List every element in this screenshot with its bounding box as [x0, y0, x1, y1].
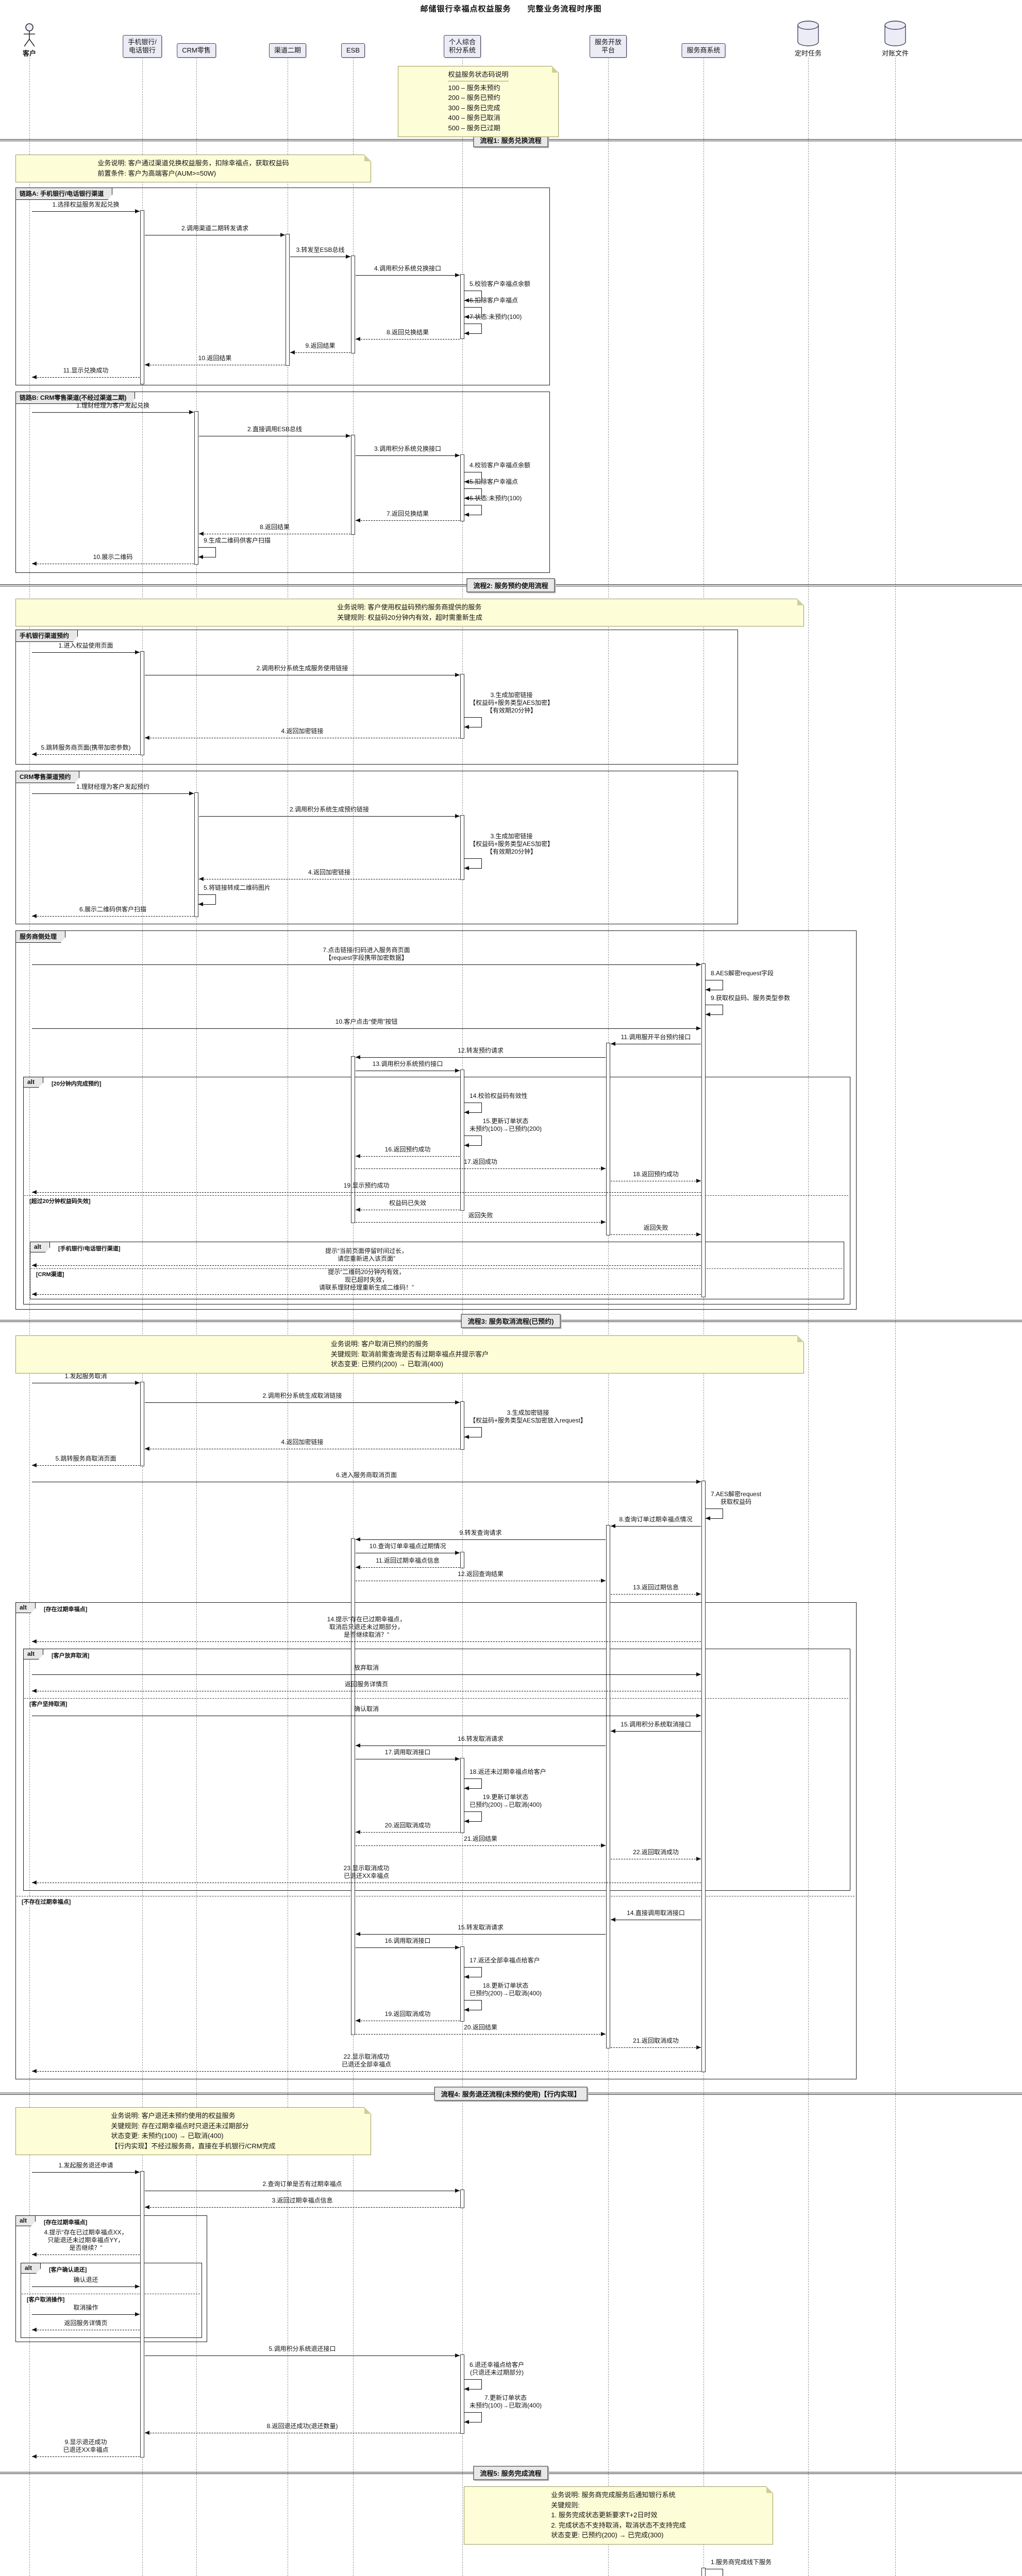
- message-line: [32, 1716, 701, 1716]
- message-line: [356, 1759, 460, 1759]
- separator-guard: [客户坚持取消]: [27, 1700, 69, 1708]
- message-label: 2.查询订单是否有过期幸福点: [262, 2180, 342, 2188]
- activation-bar: [701, 1481, 706, 2072]
- section-divider-label: 流程3: 服务取消流程(已预约): [461, 1314, 561, 1328]
- message-line: [145, 2433, 460, 2433]
- message-label: 12.返回查询结果: [458, 1570, 504, 1578]
- message-label-line: 是否继续？”: [44, 2244, 127, 2252]
- message-line: [32, 1674, 701, 1675]
- message-label: 4.返回加密链接: [308, 869, 350, 876]
- arrowhead-icon: [135, 2170, 140, 2174]
- arrowhead-icon: [455, 814, 460, 818]
- message-label: 22.返回取消成功: [633, 1849, 679, 1856]
- arrowhead-icon: [356, 1830, 360, 1834]
- message-label-line: 6.状态:未预约(100): [470, 495, 522, 502]
- arrowhead-icon: [290, 350, 295, 354]
- message-label-line: 提示“二维码20分钟内有效，: [319, 1268, 414, 1276]
- activation-bar: [701, 963, 706, 1297]
- message-line: [32, 1265, 701, 1266]
- message-label-line: 9.转发查询请求: [459, 1529, 501, 1537]
- message-label-line: 22.返回取消成功: [633, 1849, 679, 1856]
- message-label-line: 7.状态:未预约(100): [470, 313, 522, 321]
- message-line: [356, 1222, 606, 1223]
- arrowhead-icon: [696, 1714, 701, 1718]
- message-label-line: 4.返回加密链接: [281, 727, 323, 735]
- arrowhead-icon: [455, 1069, 460, 1073]
- participant-box: 手机银行/电话银行: [123, 35, 162, 58]
- note-body: 业务说明: 客户退还未预约使用的权益服务关键规则: 存在过期幸福点时只退还未过期…: [111, 2111, 275, 2151]
- message-label-line: 2.调用渠道二期转发请求: [181, 225, 248, 232]
- message-label-line: 19.返回取消成功: [385, 2010, 431, 2018]
- note-body: 业务说明: 客户使用权益码预约服务商提供的服务关键规则: 权益码20分钟内有效，…: [337, 602, 482, 622]
- message-label-line: 2.调用积分系统生成取消链接: [262, 1392, 342, 1400]
- message-line: [32, 1641, 701, 1642]
- message-label-line: 19.显示预约成功: [344, 1182, 390, 1190]
- message-label-line: 21.返回取消成功: [633, 2037, 679, 2045]
- activation-bar: [606, 1043, 610, 1235]
- participant-timer: 定时任务: [795, 20, 822, 58]
- message-label: 11.显示兑换成功: [63, 367, 109, 375]
- message-label: 1.发起服务取消: [64, 1372, 107, 1380]
- participant-label: ESB: [346, 46, 360, 55]
- message-line: [356, 1553, 460, 1553]
- message-label-line: 7.更新订单状态: [470, 2394, 542, 2402]
- message-label: 4.返回加密链接: [281, 727, 323, 735]
- participant-box: 服务开放平台: [590, 35, 627, 58]
- message-label: 5.校验客户幸福点余额: [470, 280, 530, 288]
- message-line: [356, 1057, 606, 1058]
- message-label-line: 20.返回结果: [464, 2024, 497, 2031]
- message-line: [32, 211, 140, 212]
- message-line: [145, 365, 285, 365]
- frame-guard: [客户放弃取消]: [52, 1651, 89, 1659]
- message-label-line: 18.更新订单状态: [470, 1982, 542, 1990]
- arrowhead-icon: [611, 1042, 615, 1046]
- frame-guard: [手机银行/电话银行渠道]: [58, 1244, 120, 1252]
- message-line: [32, 2172, 140, 2173]
- message-label: 5.扣除客户幸福点: [470, 478, 518, 486]
- frame-guard: [客户确认退还]: [49, 2265, 87, 2274]
- activation-bar: [460, 815, 464, 880]
- message-label-line: 13.返回过期信息: [633, 1584, 679, 1591]
- participant-box: ESB: [341, 43, 365, 58]
- frame-label: 链路A: 手机银行/电话银行渠道: [15, 188, 112, 200]
- message-label-line: 23.显示取消成功: [344, 1865, 390, 1872]
- arrowhead-icon: [464, 2387, 469, 2391]
- message-label-line: 1.理财经理为客户发起兑换: [76, 402, 149, 410]
- participant-box: 渠道二期: [269, 43, 306, 58]
- note-body: 业务说明: 服务商完成服务后通知银行系统关键规则:1. 服务完成状态更新要求T+…: [551, 2490, 685, 2540]
- message-label-line: 权益码已失效: [389, 1199, 426, 1207]
- message-line: [356, 339, 460, 340]
- participant-label: 客户: [23, 48, 36, 58]
- message-label-line: 提示“当前页面停留时间过长，: [325, 1247, 408, 1255]
- message-label-line: 10.展示二维码: [93, 553, 133, 561]
- message-label: 16.调用取消接口: [385, 1937, 431, 1945]
- message-label: 8.返回结果: [260, 523, 290, 531]
- message-line: [199, 816, 460, 817]
- message-label: 2.调用积分系统生成取消链接: [262, 1392, 342, 1400]
- arrowhead-icon: [356, 1565, 360, 1569]
- message-label: 3.调用积分系统兑换接口: [374, 445, 441, 453]
- arrowhead-icon: [455, 2189, 460, 2193]
- message-label: 3.返回过期幸福点信息: [272, 2197, 332, 2205]
- message-label: 12.转发预约请求: [458, 1047, 504, 1055]
- arrowhead-icon: [32, 1880, 37, 1885]
- message-label: 1.理财经理为客户发起预约: [76, 783, 149, 791]
- message-line: [32, 754, 140, 755]
- arrowhead-icon: [464, 725, 469, 729]
- separator-guard: [不存在过期幸福点]: [20, 1897, 73, 1906]
- message-label-line: 17.调用取消接口: [385, 1749, 431, 1756]
- arrowhead-icon: [145, 363, 149, 367]
- message-label-line: 1.进入权益使用页面: [58, 642, 113, 650]
- message-line: [32, 1465, 140, 1466]
- message-label-line: 已退还XX幸福点: [63, 2446, 108, 2454]
- lifeline-timer: [808, 58, 809, 2576]
- arrowhead-icon: [696, 1232, 701, 1236]
- message-label-line: 17.返还全部幸福点给客户: [470, 1957, 540, 1964]
- note: 业务说明: 客户退还未预约使用的权益服务关键规则: 存在过期幸福点时只退还未过期…: [15, 2107, 371, 2155]
- participant-open: 服务开放平台: [590, 35, 627, 58]
- message-label: 19.显示预约成功: [344, 1182, 390, 1190]
- arrowhead-icon: [464, 315, 469, 319]
- frame-label: CRM零售渠道预约: [15, 771, 79, 783]
- message-label-line: 9.生成二维码供客户扫描: [204, 537, 271, 545]
- message-label-line: 12.转发预约请求: [458, 1047, 504, 1055]
- arrowhead-icon: [706, 988, 710, 992]
- frame-label: 服务商侧处理: [15, 930, 65, 943]
- message-label: 10.查询订单幸福点过期情况: [370, 1543, 446, 1550]
- message-label: 2.调用积分系统生成服务使用链接: [256, 665, 348, 672]
- message-label-line: 1.选择权益服务发起兑换: [52, 201, 119, 209]
- participant-label: 手机银行/: [128, 38, 157, 46]
- activation-bar: [460, 274, 464, 339]
- message-line: [611, 1526, 701, 1527]
- message-label: 5.跳转服务商页面(携带加密参数): [41, 744, 130, 752]
- message-label: 20.返回取消成功: [385, 1822, 431, 1829]
- message-line: [356, 2034, 606, 2035]
- activation-bar: [140, 2171, 144, 2458]
- message-label-line: 5.将链接转成二维码图片: [204, 884, 271, 892]
- message-label-line: 10.返回结果: [198, 354, 232, 362]
- message-label-line: 11.显示兑换成功: [63, 367, 109, 375]
- message-line: [145, 2207, 460, 2208]
- message-label: 7.AES解密request获取权益码: [711, 1490, 761, 1506]
- participant-label: 电话银行: [128, 46, 157, 55]
- message-label: 提示“二维码20分钟内有效，现已超时失效，请联系理财经理重新生成二维码！”: [319, 1268, 414, 1292]
- message-label: 6.退还幸福点给客户(只退还未过期部分): [470, 2361, 524, 2377]
- arrowhead-icon: [455, 1551, 460, 1555]
- message-label-line: 【权益码+服务类型AES加密】: [470, 840, 554, 848]
- activation-bar: [460, 1552, 464, 1568]
- message-line: [32, 1482, 701, 1482]
- message-label-line: 5.扣除客户幸福点: [470, 478, 518, 486]
- arrowhead-icon: [32, 562, 37, 566]
- activation-bar: [701, 2568, 706, 2576]
- arrowhead-icon: [198, 902, 203, 906]
- arrowhead-icon: [464, 513, 469, 517]
- participant-label: 渠道二期: [274, 46, 301, 55]
- message-label-line: 6.退还幸福点给客户: [470, 2361, 524, 2369]
- message-label-line: 14.校验权益码有效性: [470, 1092, 528, 1100]
- note-line: 100 – 服务未预约: [448, 83, 508, 93]
- message-label-line: 【权益码+服务类型AES加密】: [470, 699, 554, 707]
- message-label-line: 7.点击链接/扫码进入服务商页面: [323, 946, 410, 954]
- arrowhead-icon: [356, 2019, 360, 2023]
- message-label: 11.返回过期幸福点信息: [376, 1557, 440, 1565]
- arrowhead-icon: [455, 1400, 460, 1404]
- message-line: [32, 377, 140, 378]
- message-line: [32, 916, 194, 917]
- note-line: 状态变更: 已预约(200) → 已取消(400): [331, 1359, 489, 1369]
- message-label-line: 已退还全部幸福点: [342, 2061, 391, 2069]
- message-label-line: 15.调用积分系统取消接口: [621, 1721, 691, 1728]
- lifeline-vendor: [703, 58, 704, 2576]
- message-label: 4.校验客户幸福点余额: [470, 462, 530, 469]
- note-line: 2. 完成状态不支持取消，取消状态不支持完成: [551, 2520, 685, 2531]
- message-label: 14.直接调用取消接口: [627, 1909, 685, 1917]
- frame-label: alt: [30, 1242, 50, 1252]
- message-label: 17.返回成功: [464, 1158, 497, 1166]
- message-label: 21.返回取消成功: [633, 2037, 679, 2045]
- message-label: 返回服务详情页: [64, 2319, 107, 2327]
- message-label-line: 16.转发取消请求: [458, 1735, 504, 1743]
- message-label-line: 2.调用积分系统生成服务使用链接: [256, 665, 348, 672]
- arrowhead-icon: [32, 1689, 37, 1693]
- message-label: 16.转发取消请求: [458, 1735, 504, 1743]
- arrowhead-icon: [464, 480, 469, 484]
- message-line: [32, 1028, 701, 1029]
- arrowhead-icon: [455, 273, 460, 277]
- message-label: 7.返回兑换结果: [387, 510, 429, 518]
- arrowhead-icon: [464, 866, 469, 870]
- note: 业务说明: 客户通过渠道兑换权益服务，扣除幸福点，获取权益码前置条件: 客户为高…: [15, 155, 371, 182]
- arrowhead-icon: [346, 434, 350, 438]
- arrowhead-icon: [356, 1743, 360, 1748]
- arrowhead-icon: [356, 1932, 360, 1936]
- message-label: 确认退还: [73, 2276, 98, 2284]
- message-line: [611, 1234, 701, 1235]
- frame-alt: alt[手机银行/电话银行渠道]: [30, 1242, 844, 1299]
- message-label: 4.返回加密链接: [281, 1438, 323, 1446]
- message-label: 1.服务商完成线下服务: [711, 2558, 772, 2566]
- note-line: 【行内实现】不经过服务商，直接在手机银行/CRM完成: [111, 2141, 275, 2151]
- note-body: 权益服务状态码说明100 – 服务未预约200 – 服务已预约300 – 服务已…: [448, 70, 508, 133]
- section-divider-label: 流程2: 服务预约使用流程: [466, 579, 555, 592]
- message-label-line: 18.返回预约成功: [633, 1171, 679, 1178]
- message-label-line: 2.直接调用ESB总线: [247, 426, 302, 433]
- message-label: 8.AES解密request字段: [711, 970, 774, 977]
- message-label-line: 3.生成加密链接: [470, 691, 554, 699]
- arrowhead-icon: [189, 791, 194, 795]
- note-line: 业务说明: 客户通过渠道兑换权益服务，扣除幸福点，获取权益码: [97, 158, 289, 168]
- arrowhead-icon: [32, 752, 37, 756]
- participant-customer: 客户: [22, 23, 37, 58]
- arrowhead-icon: [455, 1945, 460, 1950]
- message-label: 20.返回结果: [464, 2024, 497, 2031]
- message-label-line: 4.返回加密链接: [308, 869, 350, 876]
- message-label-line: 9.获取权益码、服务类型参数: [711, 994, 790, 1002]
- arrowhead-icon: [464, 1110, 469, 1114]
- message-label: 4.提示“存在已过期幸福点XX，只能退还未过期幸福点YY，是否继续？”: [44, 2229, 127, 2252]
- message-label: 17.返还全部幸福点给客户: [470, 1957, 540, 1964]
- note-line: 状态变更: 已预约(200) → 已完成(300): [551, 2530, 685, 2540]
- note-title: 权益服务状态码说明: [448, 70, 508, 81]
- separator-guard: [超过20分钟权益码失效]: [27, 1197, 93, 1205]
- message-label-line: 3.生成加密链接: [470, 833, 554, 840]
- message-label: 22.显示取消成功已退还全部幸福点: [342, 2053, 391, 2069]
- message-label-line: 15.更新订单状态: [470, 1117, 542, 1125]
- lifeline-recon: [895, 58, 896, 2576]
- message-label-line: 12.返回查询结果: [458, 1570, 504, 1578]
- arrowhead-icon: [356, 1537, 360, 1541]
- activation-bar: [460, 1401, 464, 1450]
- message-label-line: 8.返回结果: [260, 523, 290, 531]
- message-label-line: 返回失败: [643, 1224, 668, 1232]
- arrowhead-icon: [198, 555, 203, 559]
- message-label: 14.提示“存在已过期幸福点，取消后只退还未过期部分，是否继续取消？”: [327, 1616, 406, 1639]
- message-label: 取消操作: [73, 2304, 98, 2312]
- message-line: [611, 1044, 701, 1044]
- note: 业务说明: 客户取消已预约的服务关键规则: 取消前需查询是否有过期幸福点并提示客…: [15, 1335, 804, 1374]
- frame-separator: [24, 1195, 848, 1196]
- participant-label: 对账文件: [882, 48, 909, 58]
- message-line: [32, 793, 194, 794]
- message-label-line: 6.展示二维码供客户扫描: [79, 906, 146, 913]
- message-line: [356, 1934, 606, 1935]
- message-label-line: 获取权益码: [711, 1498, 761, 1506]
- participant-box: CRM零售: [177, 43, 216, 58]
- message-label: 提示“当前页面停留时间过长，请您重新进入该页面”: [325, 1247, 408, 1263]
- message-label-line: 4.返回加密链接: [281, 1438, 323, 1446]
- arrowhead-icon: [464, 1786, 469, 1790]
- participant-mobile: 手机银行/电话银行: [123, 35, 162, 58]
- message-line: [32, 1294, 701, 1295]
- activation-bar: [460, 2354, 464, 2434]
- message-line: [199, 879, 460, 879]
- arrowhead-icon: [199, 532, 204, 536]
- message-line: [145, 235, 285, 235]
- note-line: 500 – 服务已过期: [448, 123, 508, 133]
- activation-bar: [460, 674, 464, 739]
- message-label: 9.转发查询请求: [459, 1529, 501, 1537]
- message-label-line: 已预约(200)→已取消(400): [470, 1801, 542, 1809]
- message-line: [32, 2330, 140, 2330]
- arrowhead-icon: [32, 1263, 37, 1267]
- participant-label: CRM零售: [182, 46, 211, 55]
- message-line: [356, 1539, 606, 1540]
- activation-bar: [351, 256, 355, 353]
- message-line: [356, 2021, 460, 2021]
- message-line: [611, 2047, 701, 2048]
- participant-esb: ESB: [341, 43, 365, 58]
- participant-crm: CRM零售: [177, 43, 216, 58]
- message-label: 19.返回取消成功: [385, 2010, 431, 2018]
- message-label: 13.调用积分系统预约接口: [373, 1060, 443, 1068]
- message-label-line: 【权益码+服务类型AES加密放入request】: [470, 1417, 587, 1425]
- message-line: [145, 738, 460, 738]
- message-label: 9.显示退还成功已退还XX幸福点: [63, 2438, 108, 2454]
- message-label: 5.跳转服务商取消页面: [55, 1455, 116, 1463]
- message-label-line: 6.进入服务商取消页面: [336, 1471, 397, 1479]
- participant-points: 个人综合积分系统: [444, 35, 481, 58]
- message-label-line: 18.返还未过期幸福点给客户: [470, 1768, 546, 1776]
- participant-label: 个人综合: [449, 38, 476, 46]
- message-line: [611, 1181, 701, 1181]
- frame-label: alt: [23, 1649, 43, 1659]
- arrowhead-icon: [601, 1843, 606, 1848]
- message-label: 权益码已失效: [389, 1199, 426, 1207]
- participant-box: 个人综合积分系统: [444, 35, 481, 58]
- message-label-line: 1.理财经理为客户发起预约: [76, 783, 149, 791]
- frame-label: alt: [23, 1077, 43, 1088]
- arrowhead-icon: [464, 1975, 469, 1979]
- note: 业务说明: 服务商完成服务后通知银行系统关键规则:1. 服务完成状态更新要求T+…: [464, 2486, 773, 2545]
- note-line: 200 – 服务已预约: [448, 93, 508, 103]
- activation-bar: [460, 1758, 464, 1833]
- message-line: [356, 455, 460, 456]
- arrowhead-icon: [696, 1672, 701, 1676]
- message-label-line: 19.更新订单状态: [470, 1793, 542, 1801]
- message-label: 7.点击链接/扫码进入服务商页面【request字段携带加密数据】: [323, 946, 410, 962]
- message-label: 返回失败: [468, 1212, 493, 1219]
- message-label-line: 取消后只退还未过期部分，: [327, 1623, 406, 1631]
- message-line: [32, 1691, 701, 1691]
- arrowhead-icon: [464, 1819, 469, 1823]
- arrowhead-icon: [455, 453, 460, 457]
- message-label-line: 4.校验客户幸福点余额: [470, 462, 530, 469]
- message-label-line: 已退还XX幸福点: [344, 1872, 390, 1880]
- arrowhead-icon: [32, 2069, 37, 2073]
- note-line: 关键规则: 取消前需查询是否有过期幸福点并提示客户: [331, 1349, 489, 1360]
- message-label-line: 5.调用积分系统退还接口: [269, 2345, 336, 2353]
- section-divider-label: 流程5: 服务完成流程: [473, 2466, 548, 2480]
- sequence-diagram-canvas: 邮储银行幸福点权益服务 完整业务流程时序图 客户客户手机银行/电话银行手机银行/…: [0, 0, 1022, 2576]
- message-line: [32, 2456, 140, 2457]
- note-line: 业务说明: 客户取消已预约的服务: [331, 1339, 489, 1349]
- frame-label: alt: [21, 2263, 41, 2274]
- message-label-line: 9.显示退还成功: [63, 2438, 108, 2446]
- message-label: 10.展示二维码: [93, 553, 133, 561]
- message-line: [356, 1071, 460, 1071]
- activation-bar: [194, 411, 198, 565]
- message-label: 3.生成加密链接【权益码+服务类型AES加密放入request】: [470, 1409, 587, 1425]
- message-label-line: 返回服务详情页: [345, 1681, 388, 1688]
- arrowhead-icon: [280, 233, 285, 237]
- arrowhead-icon: [356, 1154, 360, 1158]
- arrowhead-icon: [464, 331, 469, 335]
- message-label-line: 13.调用积分系统预约接口: [373, 1060, 443, 1068]
- participant-label: 平台: [595, 46, 622, 55]
- message-label-line: 3.转发至ESB总线: [296, 246, 344, 254]
- message-label-line: 1.服务商完成线下服务: [711, 2558, 772, 2566]
- message-label: 3.生成加密链接【权益码+服务类型AES加密】【有效期20分钟】: [470, 691, 554, 715]
- message-label-line: 1.发起服务退还申请: [58, 2162, 113, 2170]
- activation-bar: [351, 1056, 355, 1223]
- arrowhead-icon: [611, 1918, 615, 1922]
- activation-bar: [460, 454, 464, 521]
- message-label: 确认取消: [354, 1705, 379, 1713]
- message-label-line: 是否继续取消？”: [327, 1631, 406, 1639]
- note-line: 业务说明: 客户使用权益码预约服务商提供的服务: [337, 602, 482, 613]
- message-label: 13.返回过期信息: [633, 1584, 679, 1591]
- note: 权益服务状态码说明100 – 服务未预约200 – 服务已预约300 – 服务已…: [398, 66, 559, 137]
- activation-bar: [140, 651, 144, 755]
- frame-guard: [存在过期幸福点]: [44, 1605, 87, 1613]
- frame-separator: [22, 2294, 200, 2294]
- arrowhead-icon: [135, 2284, 140, 2289]
